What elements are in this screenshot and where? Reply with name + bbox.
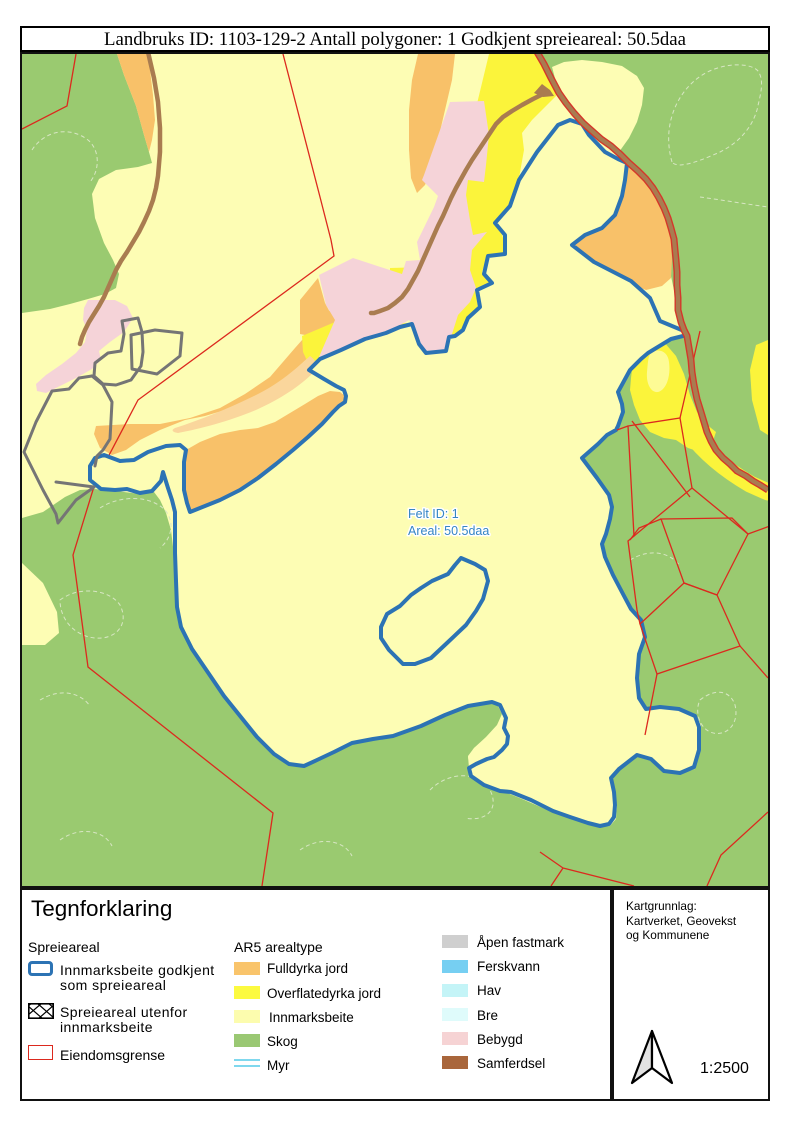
svg-text:Felt ID: 1: Felt ID: 1 [408,507,459,521]
svg-text:Areal: 50.5daa: Areal: 50.5daa [408,524,489,538]
